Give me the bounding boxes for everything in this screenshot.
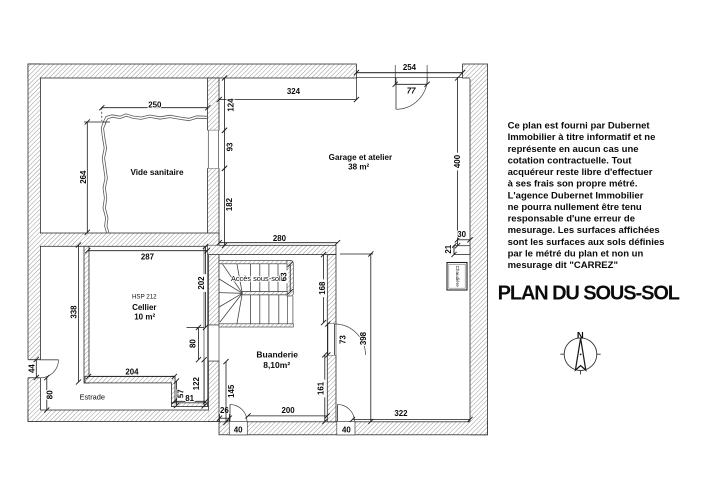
svg-text:145: 145: [227, 384, 236, 398]
svg-text:représente en aucun cas une: représente en aucun cas une: [508, 144, 639, 155]
svg-text:cotation contractuelle. Tout: cotation contractuelle. Tout: [508, 155, 633, 166]
svg-text:202: 202: [197, 276, 206, 290]
svg-text:Estrade: Estrade: [80, 392, 105, 401]
svg-text:par le métré du plan et non un: par le métré du plan et non un: [508, 248, 644, 259]
svg-text:responsable d'une erreur de: responsable d'une erreur de: [508, 214, 635, 225]
svg-text:26: 26: [220, 406, 229, 415]
svg-text:338: 338: [69, 305, 78, 319]
svg-text:200: 200: [282, 406, 296, 415]
svg-text:124: 124: [227, 98, 236, 112]
svg-text:Chaudière: Chaudière: [455, 266, 460, 288]
svg-text:398: 398: [359, 331, 368, 345]
svg-text:PLAN DU SOUS-SOL: PLAN DU SOUS-SOL: [498, 283, 680, 305]
svg-text:81: 81: [185, 394, 194, 403]
svg-text:400: 400: [453, 154, 462, 168]
svg-text:N: N: [577, 331, 584, 342]
svg-text:80: 80: [188, 339, 197, 348]
svg-text:80: 80: [46, 390, 55, 399]
svg-text:168: 168: [318, 281, 327, 295]
svg-text:Immobilier à titre informatif: Immobilier à titre informatif et ne: [508, 132, 656, 143]
svg-text:280: 280: [273, 234, 287, 243]
svg-text:44: 44: [28, 364, 37, 373]
svg-text:10 m²: 10 m²: [134, 312, 155, 321]
svg-text:254: 254: [403, 63, 417, 72]
svg-text:93: 93: [226, 142, 235, 151]
svg-text:77: 77: [407, 86, 416, 95]
svg-text:21: 21: [444, 244, 453, 253]
svg-text:250: 250: [148, 100, 162, 109]
svg-text:40: 40: [234, 425, 243, 434]
svg-text:Cellier: Cellier: [132, 303, 156, 312]
svg-text:73: 73: [338, 335, 347, 344]
svg-text:acquéreur reste libre d'effect: acquéreur reste libre d'effectuer: [508, 167, 653, 178]
svg-text:264: 264: [79, 170, 88, 184]
svg-text:324: 324: [287, 87, 301, 96]
svg-text:à ses frais son propre métré.: à ses frais son propre métré.: [508, 179, 638, 190]
svg-text:161: 161: [316, 381, 325, 395]
svg-text:287: 287: [141, 253, 155, 262]
svg-text:Garage et atelier: Garage et atelier: [329, 153, 393, 162]
svg-text:sont les surfaces aux sols déf: sont les surfaces aux sols définies: [508, 237, 665, 248]
svg-text:Ce plan est fourni par Duberne: Ce plan est fourni par Dubernet: [508, 121, 651, 132]
svg-text:122: 122: [192, 377, 201, 391]
svg-text:mesurage dit "CARREZ": mesurage dit "CARREZ": [508, 260, 618, 271]
svg-text:Buanderie: Buanderie: [256, 349, 298, 359]
svg-text:mesurage. Les surfaces affiché: mesurage. Les surfaces affichées: [508, 225, 660, 236]
svg-text:Vide sanitaire: Vide sanitaire: [130, 168, 184, 177]
svg-text:30: 30: [457, 230, 466, 239]
svg-text:40: 40: [342, 425, 351, 434]
svg-text:204: 204: [125, 367, 139, 376]
svg-text:38 m²: 38 m²: [348, 162, 369, 171]
svg-text:322: 322: [394, 409, 408, 418]
svg-text:8,10m²: 8,10m²: [263, 360, 290, 370]
svg-text:L'agence Dubernet Immobilier: L'agence Dubernet Immobilier: [508, 190, 644, 201]
svg-text:Accès sous-sol: Accès sous-sol: [231, 274, 281, 283]
svg-text:HSP 212: HSP 212: [132, 294, 157, 301]
svg-text:ne pourra nullement être tenu: ne pourra nullement être tenu: [508, 202, 642, 213]
svg-text:182: 182: [225, 197, 234, 211]
